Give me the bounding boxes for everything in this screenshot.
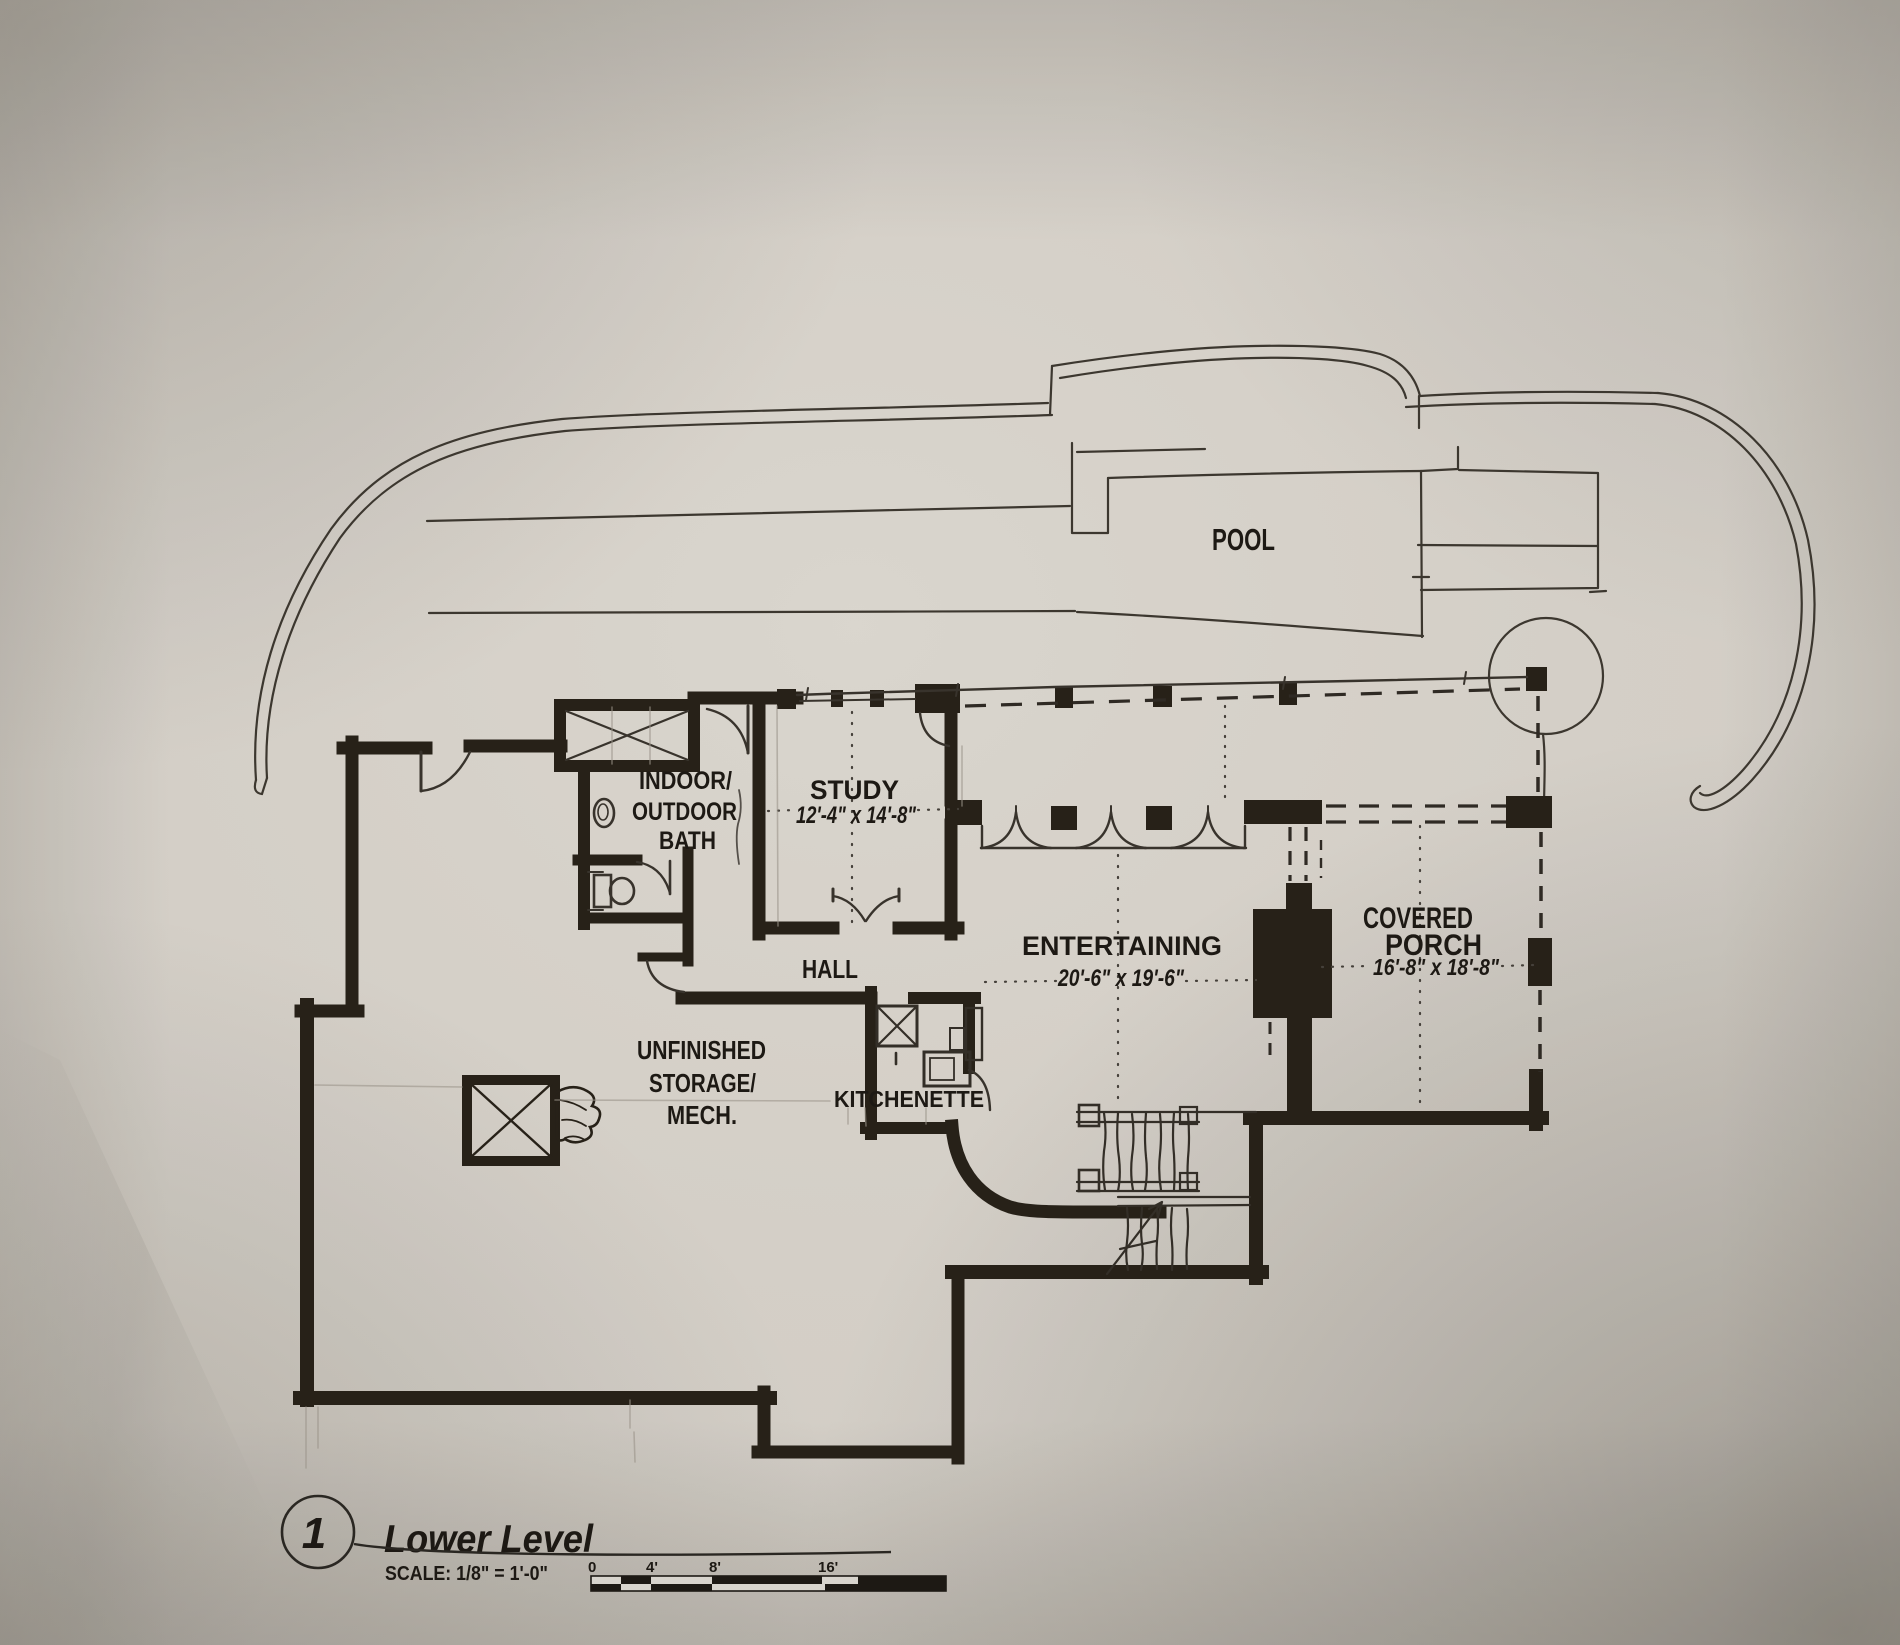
svg-text:STORAGE/: STORAGE/ (649, 1068, 756, 1098)
svg-text:MECH.: MECH. (667, 1100, 737, 1130)
svg-text:12'-4" x 14'-8": 12'-4" x 14'-8" (796, 802, 916, 829)
svg-text:16'-8" x 18'-8": 16'-8" x 18'-8" (1373, 954, 1500, 980)
svg-text:HALL: HALL (802, 954, 858, 984)
svg-text:BATH: BATH (659, 827, 716, 855)
svg-text:UNFINISHED: UNFINISHED (637, 1035, 766, 1065)
svg-text:INDOOR/: INDOOR/ (639, 767, 732, 795)
svg-text:STUDY: STUDY (810, 775, 899, 805)
svg-text:ENTERTAINING: ENTERTAINING (1022, 931, 1222, 961)
svg-text:1: 1 (302, 1509, 326, 1558)
svg-text:0: 0 (588, 1559, 596, 1576)
svg-text:8': 8' (709, 1559, 721, 1576)
svg-text:OUTDOOR: OUTDOOR (632, 798, 737, 826)
svg-text:SCALE: 1/8" = 1'-0": SCALE: 1/8" = 1'-0" (385, 1563, 548, 1585)
svg-text:POOL: POOL (1212, 522, 1275, 557)
svg-text:20'-6" x 19'-6": 20'-6" x 19'-6" (1057, 965, 1184, 992)
svg-text:KITCHENETTE: KITCHENETTE (834, 1086, 984, 1112)
svg-text:4': 4' (646, 1559, 658, 1576)
svg-text:16': 16' (818, 1559, 838, 1576)
